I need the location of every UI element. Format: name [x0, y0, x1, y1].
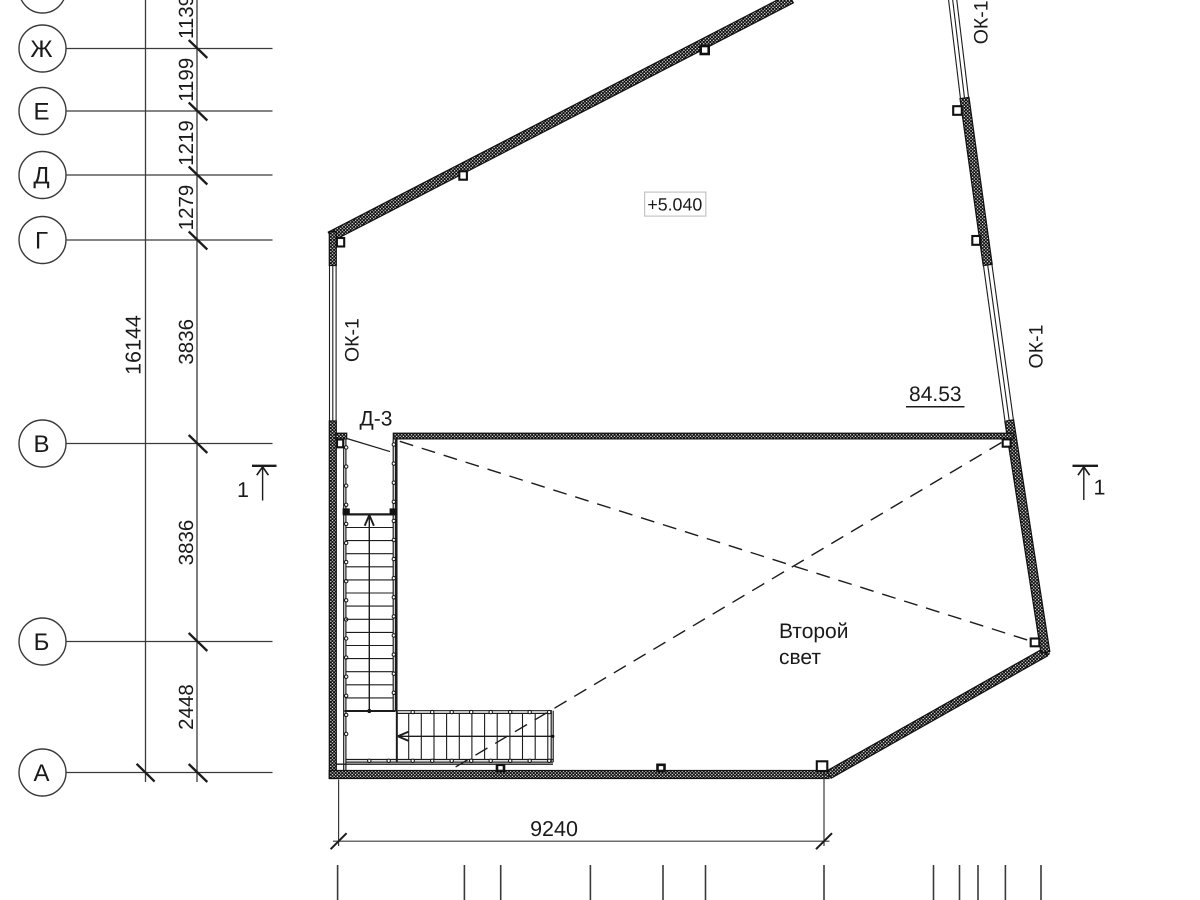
svg-text:А: А	[33, 760, 49, 787]
svg-text:1199: 1199	[175, 58, 198, 102]
svg-text:Ж: Ж	[30, 36, 52, 63]
svg-text:3836: 3836	[175, 319, 198, 365]
svg-text:9240: 9240	[530, 817, 578, 841]
svg-text:Г: Г	[35, 228, 48, 255]
svg-text:Д: Д	[33, 163, 49, 190]
svg-text:1: 1	[1094, 476, 1106, 500]
svg-text:ОК-1: ОК-1	[341, 318, 363, 362]
svg-text:1279: 1279	[175, 185, 198, 231]
svg-text:свет: свет	[779, 646, 821, 669]
svg-text:16144: 16144	[122, 315, 146, 375]
svg-text:1: 1	[237, 478, 249, 502]
svg-text:2448: 2448	[175, 684, 198, 730]
svg-text:В: В	[33, 431, 49, 458]
svg-text:3836: 3836	[175, 520, 198, 566]
svg-text:ОК-1: ОК-1	[1025, 325, 1047, 369]
svg-text:+5.040: +5.040	[647, 195, 702, 215]
svg-text:Д-3: Д-3	[360, 407, 393, 430]
svg-text:1139: 1139	[175, 0, 198, 39]
svg-text:Второй: Второй	[779, 620, 848, 643]
svg-text:Е: Е	[33, 99, 49, 126]
svg-text:84.53: 84.53	[909, 383, 962, 406]
svg-text:ОК-1: ОК-1	[970, 0, 992, 44]
svg-text:Б: Б	[34, 629, 50, 656]
svg-text:1219: 1219	[175, 120, 198, 166]
